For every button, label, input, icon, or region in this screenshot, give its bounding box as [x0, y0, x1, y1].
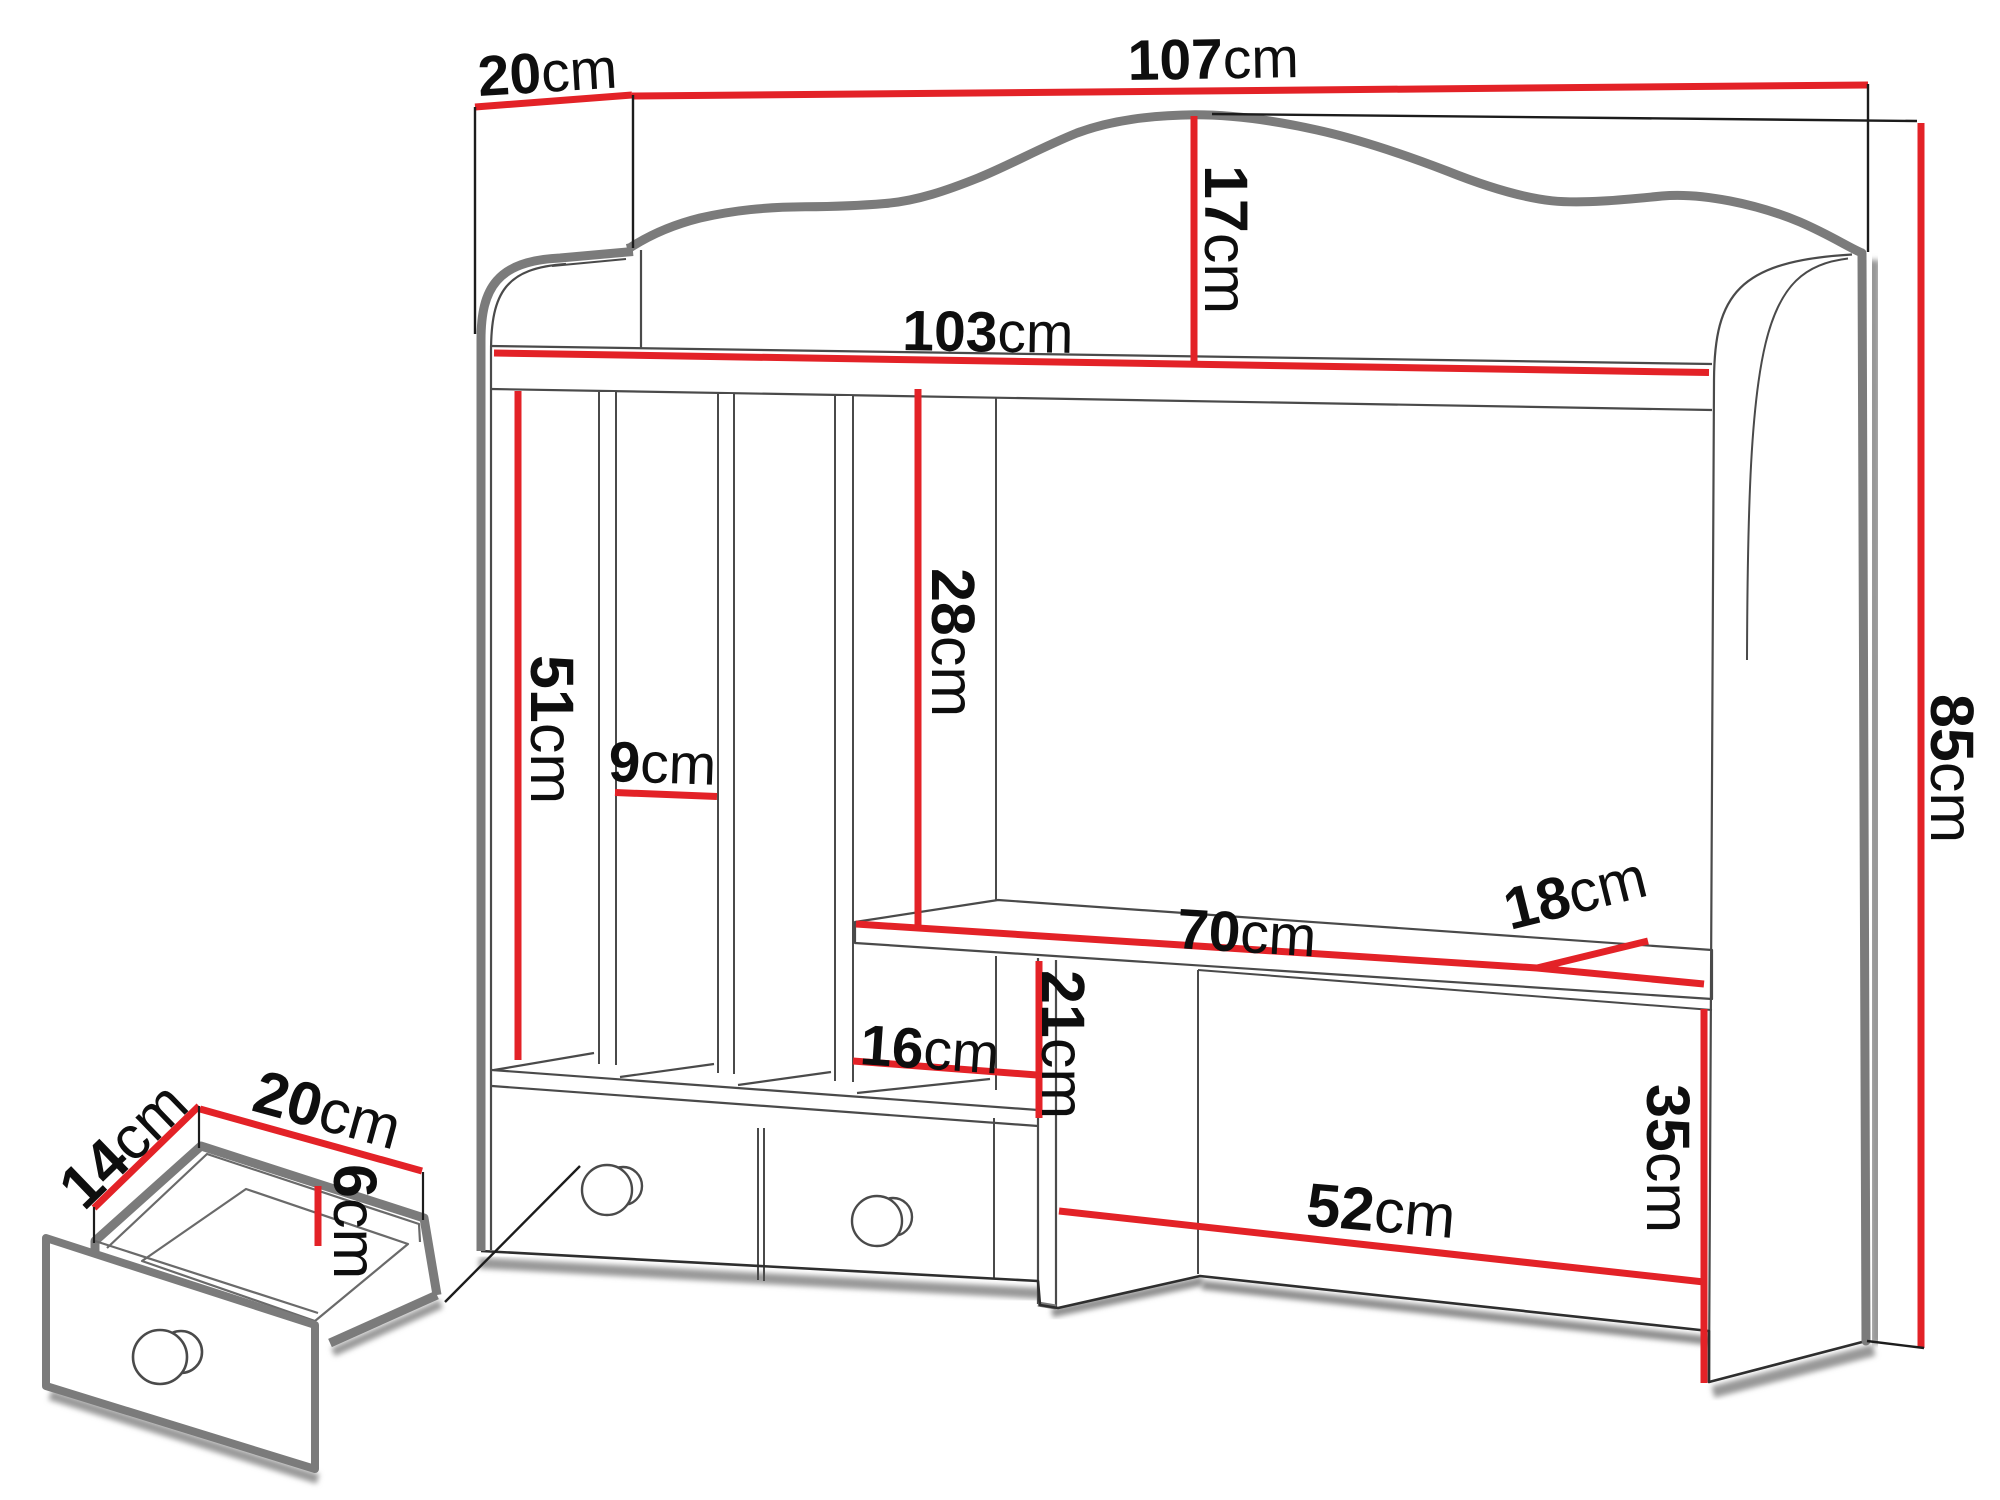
svg-text:85cm: 85cm: [1918, 694, 1986, 843]
svg-text:70cm: 70cm: [1175, 897, 1318, 969]
svg-text:28cm: 28cm: [919, 568, 987, 717]
svg-text:35cm: 35cm: [1634, 1084, 1702, 1233]
svg-text:17cm: 17cm: [1192, 165, 1260, 314]
svg-text:52cm: 52cm: [1304, 1170, 1459, 1251]
svg-text:16cm: 16cm: [858, 1013, 1002, 1087]
svg-text:51cm: 51cm: [518, 655, 586, 804]
svg-text:103cm: 103cm: [902, 299, 1074, 366]
svg-text:6cm: 6cm: [321, 1164, 389, 1279]
svg-text:107cm: 107cm: [1127, 26, 1299, 93]
svg-text:9cm: 9cm: [608, 730, 718, 798]
svg-text:20cm: 20cm: [476, 37, 619, 109]
svg-text:21cm: 21cm: [1029, 970, 1097, 1119]
